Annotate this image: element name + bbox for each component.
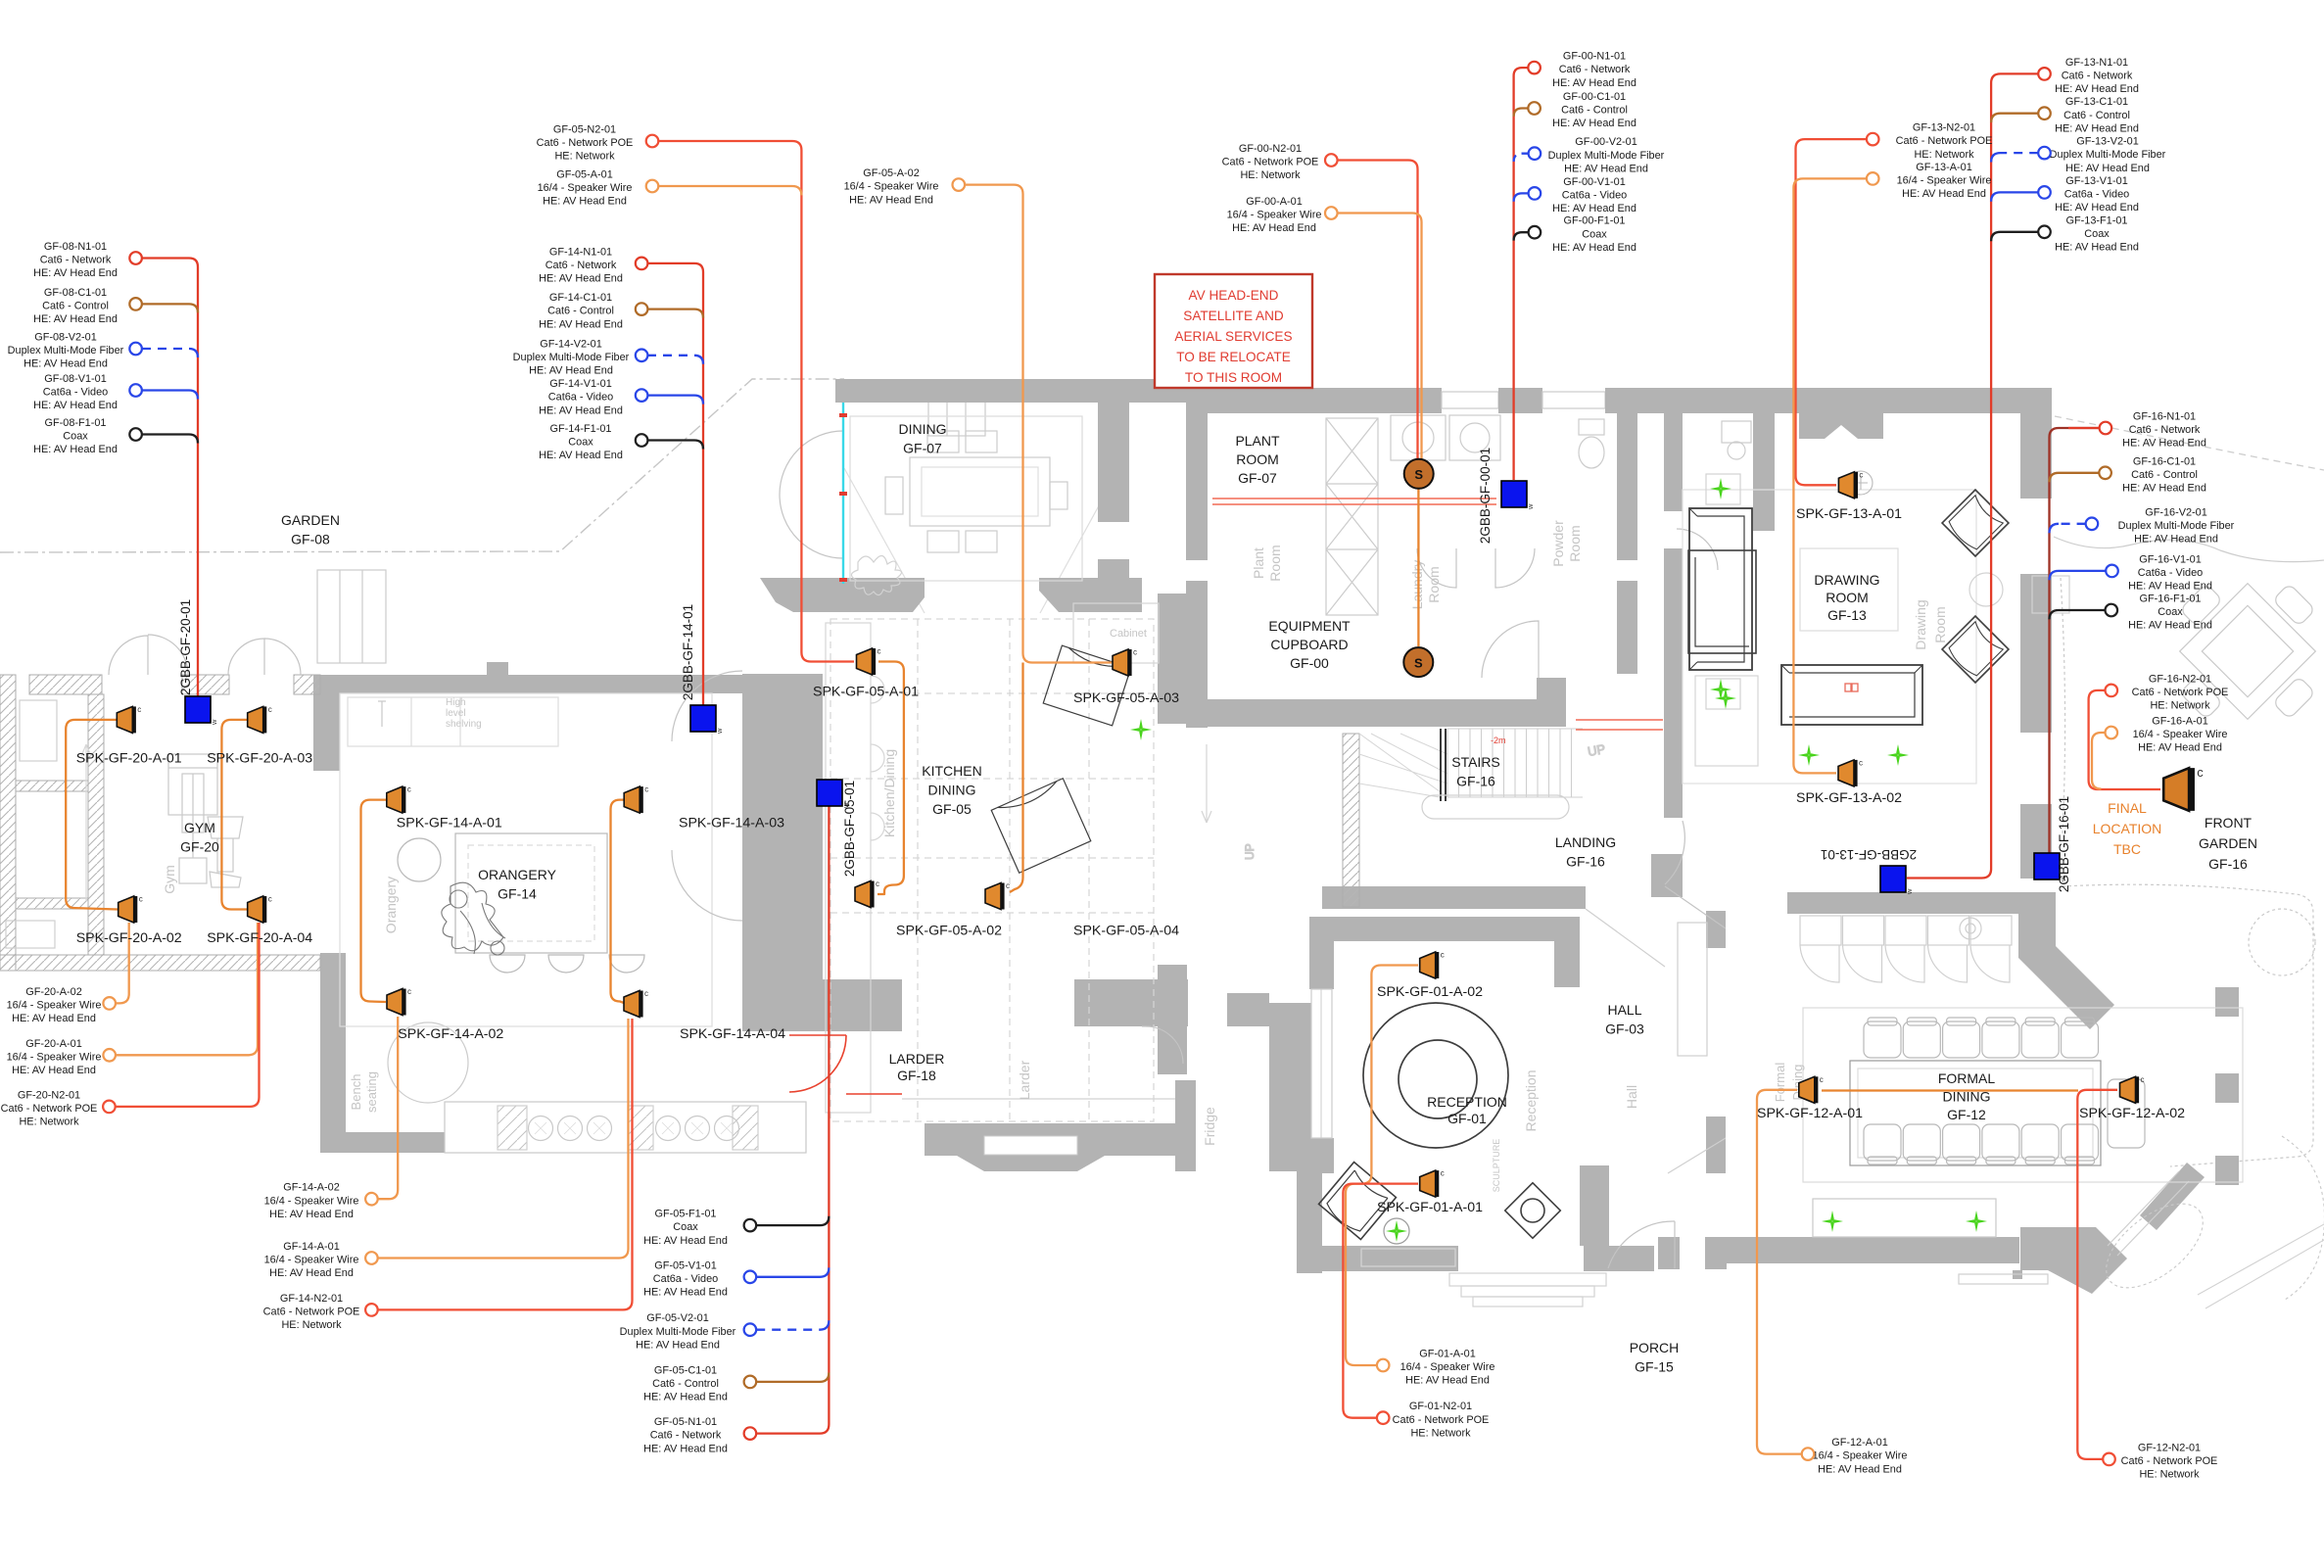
svg-text:GF-05-N1-01Cat6 - NetworkHE: A: GF-05-N1-01Cat6 - NetworkHE: AV Head End — [643, 1416, 728, 1454]
svg-text:c: c — [1859, 758, 1863, 767]
svg-text:c: c — [1859, 470, 1863, 479]
svg-text:SPK-GF-14-A-02: SPK-GF-14-A-02 — [398, 1026, 503, 1042]
svg-text:GF-00-V1-01Cat6a - VideoHE: AV: GF-00-V1-01Cat6a - VideoHE: AV Head End — [1552, 176, 1636, 214]
svg-text:Fridge: Fridge — [1202, 1107, 1217, 1146]
svg-text:SPK-GF-05-A-01: SPK-GF-05-A-01 — [813, 684, 919, 699]
svg-text:c: c — [1441, 1169, 1445, 1178]
svg-text:c: c — [1441, 951, 1445, 960]
svg-text:Drawing: Drawing — [1913, 599, 1928, 649]
svg-text:GF-13-V1-01Cat6a - VideoHE: AV: GF-13-V1-01Cat6a - VideoHE: AV Head End — [2055, 175, 2139, 214]
svg-text:c: c — [407, 987, 411, 996]
svg-text:c: c — [644, 989, 648, 998]
svg-text:c: c — [2141, 1075, 2145, 1084]
svg-text:w: w — [1526, 503, 1535, 510]
svg-text:SPK-GF-01-A-01: SPK-GF-01-A-01 — [1377, 1200, 1483, 1215]
svg-text:SPK-GF-13-A-02: SPK-GF-13-A-02 — [1796, 790, 1902, 806]
svg-text:c: c — [268, 705, 272, 714]
svg-text:c: c — [139, 895, 143, 904]
svg-text:w: w — [1905, 888, 1914, 895]
svg-text:2GBB-GF-16-01: 2GBB-GF-16-01 — [2057, 796, 2071, 892]
svg-text:Room: Room — [1426, 566, 1442, 602]
svg-text:GF-14-C1-01Cat6 - ControlHE: A: GF-14-C1-01Cat6 - ControlHE: AV Head End — [539, 292, 623, 330]
svg-text:SPK-GF-05-A-03: SPK-GF-05-A-03 — [1073, 690, 1179, 706]
svg-text:c: c — [644, 785, 648, 794]
svg-text:Bench: Bench — [349, 1074, 363, 1111]
svg-text:c: c — [407, 785, 411, 794]
svg-text:c: c — [877, 647, 881, 656]
svg-text:c: c — [876, 879, 879, 888]
svg-text:Reception: Reception — [1523, 1069, 1539, 1131]
svg-text:SPK-GF-05-A-02: SPK-GF-05-A-02 — [896, 924, 1002, 939]
svg-text:Cabinet: Cabinet — [1110, 628, 1147, 640]
svg-text:2GBB-GF-13-01: 2GBB-GF-13-01 — [1821, 847, 1917, 862]
svg-text:Room: Room — [1267, 545, 1283, 581]
svg-text:c: c — [1820, 1075, 1824, 1084]
svg-text:GF-16-V1-01Cat6a - VideoHE: AV: GF-16-V1-01Cat6a - VideoHE: AV Head End — [2128, 553, 2212, 592]
svg-text:SPK-GF-14-A-03: SPK-GF-14-A-03 — [679, 816, 784, 832]
svg-text:SPK-GF-20-A-04: SPK-GF-20-A-04 — [207, 930, 312, 946]
svg-text:c: c — [137, 705, 141, 714]
svg-text:Orangery: Orangery — [383, 877, 399, 933]
svg-text:Plant: Plant — [1251, 547, 1266, 579]
svg-text:SCULPTURE: SCULPTURE — [1492, 1139, 1501, 1193]
svg-text:Powder: Powder — [1550, 520, 1566, 567]
svg-text:UP: UP — [1243, 843, 1257, 860]
svg-text:c: c — [1006, 881, 1010, 890]
svg-text:SPK-GF-01-A-02: SPK-GF-01-A-02 — [1377, 984, 1483, 1000]
svg-text:UP: UP — [1587, 741, 1606, 759]
svg-text:SPK-GF-12-A-02: SPK-GF-12-A-02 — [2079, 1106, 2185, 1121]
svg-text:2GBB-GF-05-01: 2GBB-GF-05-01 — [842, 781, 857, 877]
svg-text:GF-08-N1-01Cat6 - NetworkHE: A: GF-08-N1-01Cat6 - NetworkHE: AV Head End — [33, 241, 118, 279]
svg-text:GF-14-V1-01Cat6a - VideoHE: AV: GF-14-V1-01Cat6a - VideoHE: AV Head End — [539, 378, 623, 416]
svg-text:GF-14-N1-01Cat6 - NetworkHE: A: GF-14-N1-01Cat6 - NetworkHE: AV Head End — [539, 246, 623, 284]
svg-text:2GBB-GF-14-01: 2GBB-GF-14-01 — [681, 604, 695, 700]
svg-text:GF-08-C1-01Cat6 - ControlHE: A: GF-08-C1-01Cat6 - ControlHE: AV Head End — [33, 287, 118, 325]
svg-text:w: w — [715, 728, 724, 735]
svg-text:Gym: Gym — [162, 865, 177, 894]
svg-text:GF-13-C1-01Cat6 - ControlHE: A: GF-13-C1-01Cat6 - ControlHE: AV Head End — [2055, 96, 2139, 134]
svg-text:SPK-GF-05-A-04: SPK-GF-05-A-04 — [1073, 924, 1179, 939]
svg-text:S: S — [1414, 467, 1423, 482]
svg-text:Kitchen/Dining: Kitchen/Dining — [881, 749, 897, 837]
svg-text:c: c — [2197, 765, 2204, 780]
svg-text:c: c — [1133, 648, 1137, 657]
svg-text:c: c — [268, 895, 272, 904]
svg-text:SPK-GF-12-A-01: SPK-GF-12-A-01 — [1757, 1106, 1863, 1121]
svg-text:2GBB-GF-00-01: 2GBB-GF-00-01 — [1478, 448, 1493, 544]
svg-text:GF-05-C1-01Cat6 - ControlHE: A: GF-05-C1-01Cat6 - ControlHE: AV Head End — [643, 1364, 728, 1402]
svg-text:Formal: Formal — [1773, 1063, 1787, 1103]
svg-text:PLANTROOMGF-07: PLANTROOMGF-07 — [1235, 433, 1280, 486]
svg-text:w: w — [210, 719, 218, 726]
svg-text:Larder: Larder — [1017, 1060, 1032, 1100]
svg-text:SPK-GF-13-A-01: SPK-GF-13-A-01 — [1796, 506, 1902, 522]
svg-text:S: S — [1414, 655, 1423, 670]
svg-text:SPK-GF-14-A-04: SPK-GF-14-A-04 — [680, 1026, 785, 1042]
svg-text:GF-13-N1-01Cat6 - NetworkHE: A: GF-13-N1-01Cat6 - NetworkHE: AV Head End — [2055, 57, 2139, 95]
svg-text:GF-00-N1-01Cat6 - NetworkHE: A: GF-00-N1-01Cat6 - NetworkHE: AV Head End — [1552, 51, 1636, 89]
svg-text:-2m: -2m — [1491, 736, 1506, 745]
svg-text:GF-05-V1-01Cat6a - VideoHE: AV: GF-05-V1-01Cat6a - VideoHE: AV Head End — [643, 1259, 728, 1298]
svg-text:GF-08-V1-01Cat6a - VideoHE: AV: GF-08-V1-01Cat6a - VideoHE: AV Head End — [33, 373, 118, 411]
svg-text:Room: Room — [1567, 525, 1583, 561]
svg-text:seating: seating — [364, 1071, 379, 1113]
svg-text:Hall: Hall — [1624, 1085, 1639, 1109]
svg-text:GF-00-C1-01Cat6 - ControlHE: A: GF-00-C1-01Cat6 - ControlHE: AV Head End — [1552, 91, 1636, 129]
svg-text:SPK-GF-20-A-01: SPK-GF-20-A-01 — [76, 751, 182, 767]
svg-text:2GBB-GF-20-01: 2GBB-GF-20-01 — [178, 599, 193, 695]
svg-text:AV HEAD-ENDSATELLITE ANDAERIAL: AV HEAD-ENDSATELLITE ANDAERIAL SERVICEST… — [1174, 288, 1292, 385]
svg-text:Room: Room — [1932, 606, 1948, 642]
svg-text:SPK-GF-20-A-03: SPK-GF-20-A-03 — [207, 751, 312, 767]
svg-text:GF-16-C1-01Cat6 - ControlHE: A: GF-16-C1-01Cat6 - ControlHE: AV Head End — [2122, 455, 2206, 494]
svg-text:SPK-GF-14-A-01: SPK-GF-14-A-01 — [397, 816, 502, 832]
svg-text:Laundry: Laundry — [1409, 560, 1425, 610]
svg-text:GF-16-N1-01Cat6 - NetworkHE: A: GF-16-N1-01Cat6 - NetworkHE: AV Head End — [2122, 411, 2206, 450]
svg-text:SPK-GF-20-A-02: SPK-GF-20-A-02 — [76, 930, 182, 946]
